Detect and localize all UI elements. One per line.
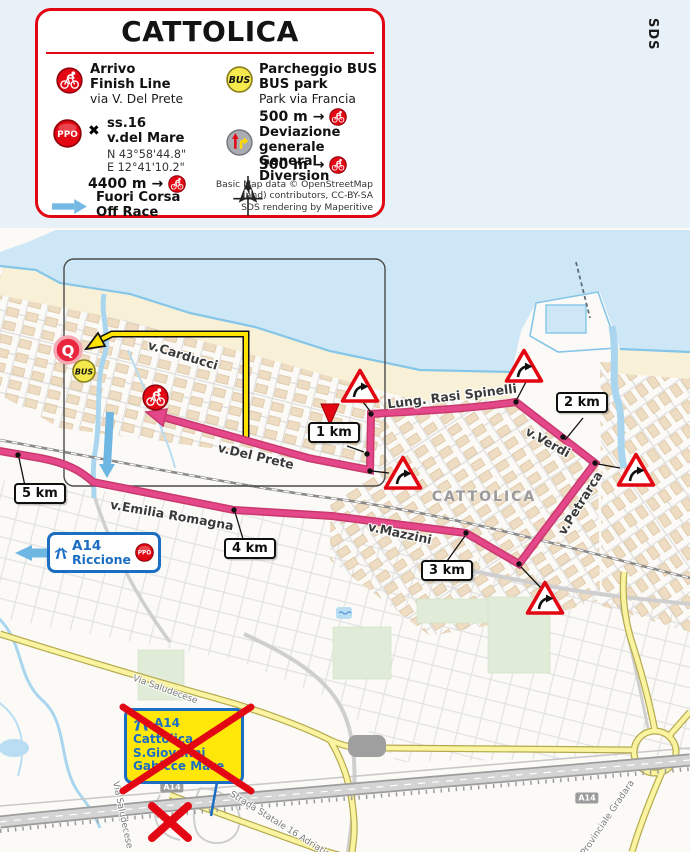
bus-park-icon: BUS <box>73 360 95 382</box>
sds-watermark: SDS <box>645 18 660 51</box>
map-page: Q BUS SDS v.Carducci v.Del Prete Lung. R… <box>0 0 690 852</box>
legend-ppo-entry: ss.16 v.del Mare <box>107 117 185 146</box>
ppo-badge-icon: PPO <box>135 539 154 566</box>
stadium <box>348 735 386 757</box>
sign-destination: Riccione <box>72 553 131 566</box>
diversion-distance-row: 300 m → <box>259 156 347 174</box>
diversion-distance: 300 m <box>259 157 308 173</box>
bus-park-icon: BUS <box>226 66 253 93</box>
finish-label-en: Finish Line <box>90 78 183 93</box>
city-label: CATTOLICA <box>432 489 537 505</box>
warning-turn-icon <box>383 455 423 491</box>
ppo-longitude: E 12°41'10.2" <box>107 161 186 174</box>
offrace-label-en: Off Race <box>96 206 180 221</box>
offrace-label-it: Fuori Corsa <box>96 191 180 206</box>
finish-line-icon <box>143 385 168 410</box>
km-marker-3: 3 km <box>421 560 473 581</box>
legend-title: CATTOLICA <box>38 15 382 48</box>
bus-street: Park via Francia <box>259 92 377 106</box>
finish-line-icon <box>329 108 347 126</box>
beach-east <box>612 360 690 366</box>
ppo-latitude: N 43°58'44.8" <box>107 148 186 161</box>
legend-finish-entry: Arrivo Finish Line via V. Del Prete <box>90 63 183 106</box>
credits-line: (and) contributors, CC-BY-SA <box>216 190 373 201</box>
svg-text:PPO: PPO <box>138 551 152 557</box>
a14-closed-exit-sign: A14 Cattolica S.Giovanni Gabicce Mare <box>124 708 244 784</box>
map-credits: Basic Map data © OpenStreetMap (and) con… <box>216 179 373 213</box>
legend-diversion-entry: Deviazione generale General Diversion <box>259 126 382 184</box>
svg-text:PPO: PPO <box>57 130 78 140</box>
legend-bus-entry: Parcheggio BUS BUS park Park via Francia <box>259 63 377 106</box>
bus-label-en: BUS park <box>259 78 377 93</box>
legend-divider <box>46 52 374 54</box>
offrace-arrow-icon <box>52 198 88 215</box>
a14-riccione-sign: A14 Riccione PPO <box>47 532 161 573</box>
road-closed-x-icon <box>146 799 194 845</box>
finish-line-icon <box>56 67 83 94</box>
finish-street: via V. Del Prete <box>90 92 183 106</box>
ppo-coordinates: N 43°58'44.8" E 12°41'10.2" <box>107 148 186 174</box>
km-marker-1: 1 km <box>308 422 360 443</box>
finish-line-icon <box>329 156 347 174</box>
ppo-street: v.del Mare <box>107 132 185 147</box>
warning-turn-icon <box>525 580 565 616</box>
legend-offrace-entry: Fuori Corsa Off Race <box>96 191 180 220</box>
credits-line: Basic Map data © OpenStreetMap <box>216 179 373 190</box>
legend-card: CATTOLICA Arrivo Finish Line via V. Del … <box>35 8 385 218</box>
right-arrow-icon: → <box>313 109 325 125</box>
right-arrow-icon: → <box>313 157 325 173</box>
motorway-icon <box>54 541 68 565</box>
cross-icon: ✖ <box>88 123 100 139</box>
warning-turn-icon <box>616 452 656 488</box>
svg-text:BUS: BUS <box>229 75 251 86</box>
sign-road: A14 <box>72 539 131 553</box>
svg-text:Q: Q <box>62 342 75 360</box>
race-hq-icon: Q <box>55 337 81 363</box>
km-marker-2: 2 km <box>556 392 608 413</box>
credits-line: SDS rendering by Maperitive <box>216 202 373 213</box>
warning-turn-icon <box>340 368 380 404</box>
a14-shield: A14 <box>575 793 598 804</box>
bus-distance-row: 500 m → <box>259 108 347 126</box>
km-marker-4: 4 km <box>224 538 276 559</box>
closed-cross-icon <box>117 701 257 797</box>
warning-turn-icon <box>504 348 544 384</box>
finish-label-it: Arrivo <box>90 63 183 78</box>
bus-label-it: Parcheggio BUS <box>259 63 377 78</box>
ppo-road: ss.16 <box>107 117 185 132</box>
bus-distance: 500 m <box>259 109 308 125</box>
svg-text:BUS: BUS <box>75 368 94 377</box>
km-marker-5: 5 km <box>14 483 66 504</box>
diversion-icon <box>226 129 253 156</box>
ppo-badge-icon: PPO <box>53 119 82 148</box>
diversion-label-it: Deviazione generale <box>259 126 382 155</box>
